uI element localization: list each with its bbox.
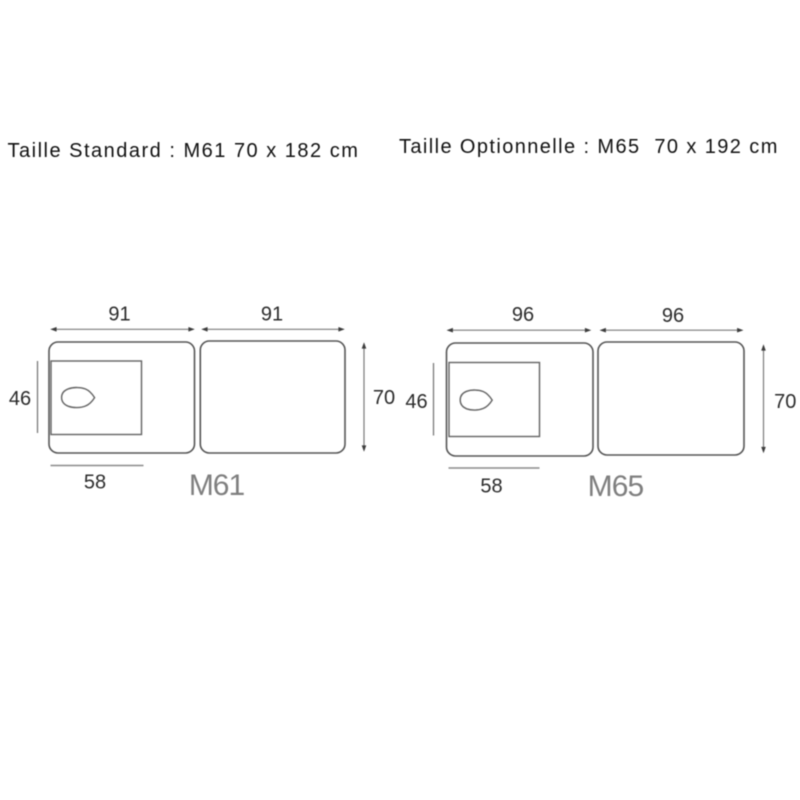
svg-text:91: 91 xyxy=(261,304,283,326)
svg-text:46: 46 xyxy=(405,391,427,413)
svg-text:58: 58 xyxy=(480,476,502,498)
svg-text:70: 70 xyxy=(774,391,796,413)
svg-text:70: 70 xyxy=(373,387,395,409)
svg-text:M65: M65 xyxy=(588,470,644,503)
svg-text:Taille Standard : M61 70 x 182: Taille Standard : M61 70 x 182 cm xyxy=(8,140,360,162)
svg-text:46: 46 xyxy=(9,388,31,410)
svg-text:M61: M61 xyxy=(189,469,245,502)
svg-text:96: 96 xyxy=(512,304,534,326)
svg-text:58: 58 xyxy=(84,471,106,493)
svg-text:91: 91 xyxy=(108,304,130,326)
svg-text:Taille Optionnelle : M65 70 x: Taille Optionnelle : M65 70 x 192 cm xyxy=(399,136,779,158)
svg-text:96: 96 xyxy=(662,305,684,327)
